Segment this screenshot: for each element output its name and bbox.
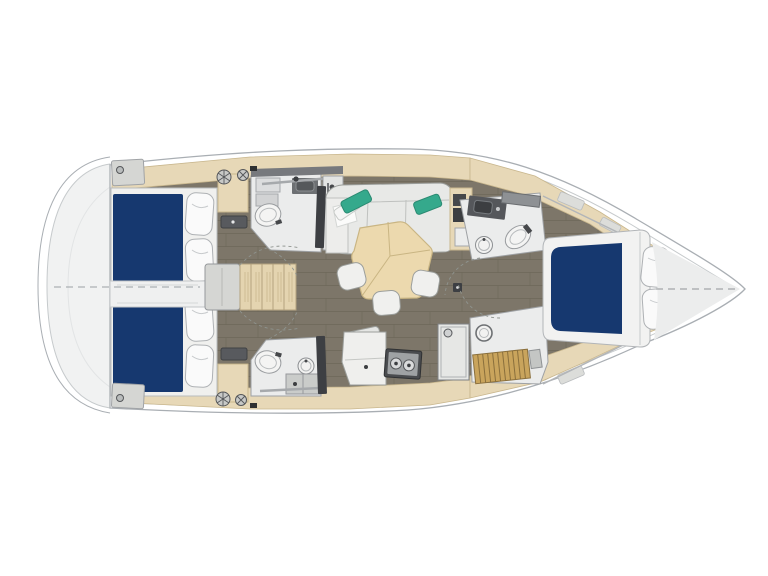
counter-handle	[364, 365, 368, 369]
sink-basin	[296, 181, 314, 191]
stairs	[240, 264, 296, 310]
swim-platform	[47, 164, 110, 408]
cabinet	[256, 178, 280, 192]
forward-head	[460, 192, 546, 260]
door-handle	[444, 329, 452, 337]
stove	[384, 349, 422, 379]
mattress	[113, 306, 183, 392]
transom-locker	[111, 159, 144, 186]
shower-cabinet	[529, 349, 542, 368]
sink-round	[476, 325, 492, 341]
vent	[293, 176, 298, 181]
stern-fitting	[117, 395, 124, 402]
yacht-floorplan	[0, 0, 768, 576]
transom-locker	[111, 383, 144, 409]
vberth-mattress	[551, 243, 622, 334]
teak-grate	[473, 349, 531, 384]
shower-door	[438, 324, 469, 380]
deck-fitting	[250, 403, 257, 408]
mattress	[113, 194, 183, 282]
stern-fitting	[117, 167, 124, 174]
vanity-shelf	[221, 348, 247, 360]
deck-fitting	[250, 166, 257, 171]
floorplan-canvas	[0, 0, 768, 576]
aft-cabin-starboard	[111, 298, 217, 409]
